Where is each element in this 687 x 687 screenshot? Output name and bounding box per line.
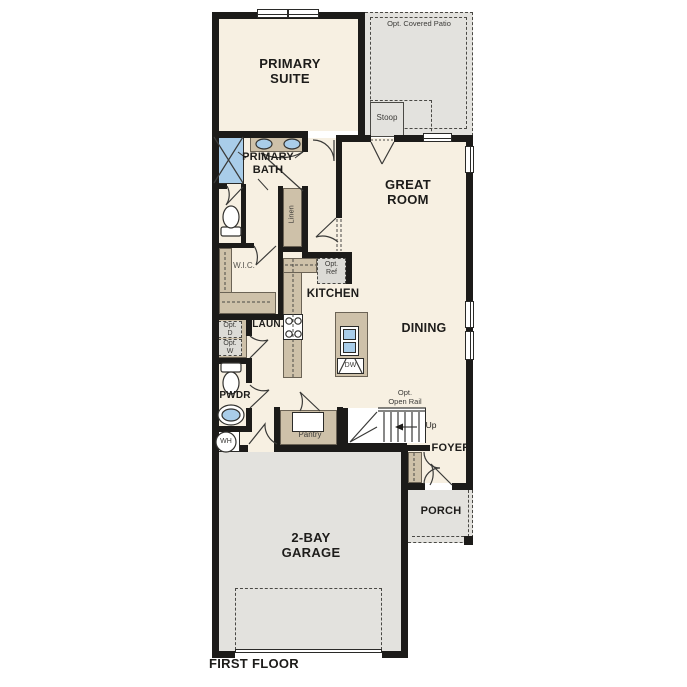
window: [257, 9, 288, 18]
sink-basin: [343, 329, 356, 340]
wic-shelf-bottom: [219, 292, 276, 314]
window: [465, 146, 474, 173]
wall: [452, 135, 473, 142]
sink-basin: [343, 342, 356, 353]
porch-column: [464, 536, 473, 545]
wall: [336, 135, 371, 142]
water-heater-label: WH: [215, 438, 237, 446]
opt-ref-label: Opt. Ref: [317, 261, 346, 277]
kitchen-label: KITCHEN: [302, 288, 364, 301]
primary-bath-label: PRIMARY BATH: [226, 151, 310, 176]
dining-label: DINING: [396, 321, 452, 335]
floor-plan-canvas: Opt. Covered Patio Stoop PRIMARY SUITE P…: [0, 0, 687, 687]
window: [423, 133, 452, 142]
garage-door-threshold: [235, 649, 382, 653]
wall: [302, 186, 308, 252]
garage-door-outline: [235, 588, 382, 650]
opt-open-rail-label: Opt. Open Rail: [374, 389, 436, 406]
wall: [336, 142, 342, 218]
great-room-label: GREAT ROOM: [366, 178, 450, 208]
wall: [343, 408, 348, 448]
stoop-label: Stoop: [371, 113, 403, 122]
wall: [408, 445, 430, 451]
foyer-closet: [408, 452, 422, 483]
pantry-shelf: [292, 412, 324, 432]
wall: [246, 363, 252, 383]
window: [465, 301, 474, 328]
porch-label: PORCH: [416, 505, 466, 518]
wall: [274, 407, 280, 452]
bath-vanity: [250, 136, 308, 152]
foyer-label: FOYER: [429, 442, 473, 455]
dishwasher-label: DW: [337, 362, 364, 370]
opt-dryer-label: Opt. D: [218, 322, 242, 338]
stair-run: [348, 408, 426, 443]
wall: [302, 138, 308, 152]
covered-patio-label: Opt. Covered Patio: [369, 20, 469, 29]
wall: [219, 184, 227, 189]
wall: [401, 445, 408, 658]
laundry-label: LAUN.: [248, 319, 288, 331]
wall: [394, 135, 423, 142]
wall: [212, 131, 308, 138]
stairs-up-label: Up: [420, 421, 442, 431]
wall: [302, 252, 352, 258]
pantry-label: Pantry: [292, 430, 328, 439]
plan-title: FIRST FLOOR: [209, 657, 349, 672]
wall: [358, 12, 365, 141]
wic-label: W.I.C.: [224, 261, 264, 270]
window: [465, 331, 474, 360]
primary-suite-label: PRIMARY SUITE: [238, 57, 342, 87]
wall: [452, 483, 473, 490]
powder-label: PWDR: [210, 390, 260, 402]
wall: [346, 252, 352, 284]
wall: [337, 443, 407, 448]
wall: [408, 483, 425, 490]
wall: [382, 651, 408, 658]
opt-washer-label: Opt. W: [218, 340, 242, 356]
window: [288, 9, 319, 18]
wall: [278, 186, 283, 320]
linen-label: Linen: [288, 194, 297, 234]
wall: [241, 184, 246, 243]
wall: [212, 426, 252, 432]
wall: [212, 243, 254, 248]
kitchen-counter-top: [283, 258, 317, 273]
wall: [240, 445, 248, 452]
garage-label: 2-BAY GARAGE: [270, 531, 352, 561]
